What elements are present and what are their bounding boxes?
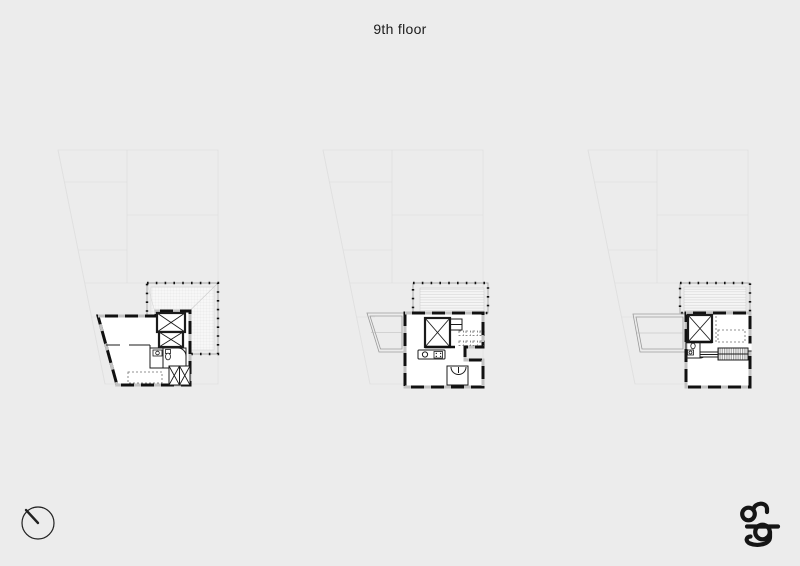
roof-terrace bbox=[680, 283, 750, 313]
side-deck bbox=[633, 314, 686, 352]
apartment-unit bbox=[686, 313, 752, 387]
ag-monogram-logo bbox=[742, 504, 778, 545]
apartment-unit bbox=[98, 311, 190, 385]
floor-plan-right bbox=[588, 150, 752, 387]
door-opening bbox=[748, 343, 751, 351]
bench-sofa bbox=[718, 348, 748, 360]
elevator-shaft bbox=[686, 315, 716, 342]
side-deck bbox=[367, 313, 405, 352]
floor-plans-canvas bbox=[0, 0, 800, 566]
elevator-shaft bbox=[157, 313, 185, 347]
kitchen-island bbox=[418, 350, 445, 359]
north-arrow-icon bbox=[22, 507, 54, 539]
roof-terrace bbox=[413, 283, 488, 313]
drawing-sheet: 9th floor bbox=[0, 0, 800, 566]
staircase bbox=[169, 366, 190, 385]
floor-plan-left bbox=[58, 150, 218, 385]
apartment-unit bbox=[405, 313, 485, 387]
floor-plan-middle bbox=[323, 150, 488, 387]
